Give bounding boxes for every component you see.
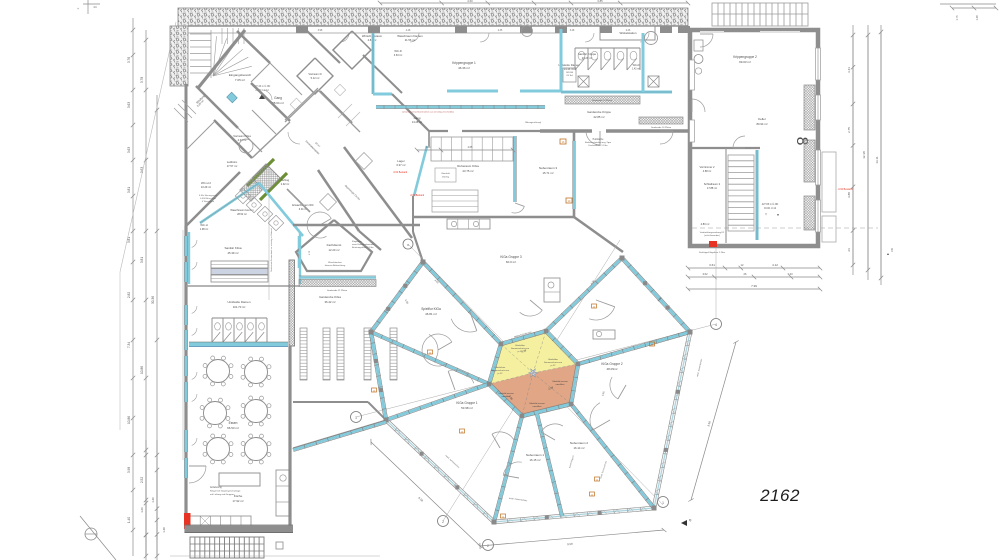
svg-text:9.59: 9.59 xyxy=(567,542,573,546)
svg-text:24: 24 xyxy=(847,248,851,252)
svg-text:Glasfeld aussen: Glasfeld aussen xyxy=(498,393,514,395)
svg-text:WC-H 2: WC-H 2 xyxy=(201,181,211,185)
svg-text:-0.62 Bestand: -0.62 Bestand xyxy=(393,171,408,174)
svg-text:3.48: 3.48 xyxy=(570,30,575,32)
svg-text:Sanitär KiGa: Sanitär KiGa xyxy=(224,246,241,250)
svg-text:Glasfeld aussen: Glasfeld aussen xyxy=(552,381,568,383)
svg-text:10.29 m²: 10.29 m² xyxy=(201,185,211,189)
svg-text:19.46 m²: 19.46 m² xyxy=(564,67,574,71)
svg-text:3.81: 3.81 xyxy=(140,257,144,263)
svg-text:60.0 m²: 60.0 m² xyxy=(506,260,516,264)
svg-text:12.20 m²: 12.20 m² xyxy=(328,248,339,252)
svg-text:101.70 m²: 101.70 m² xyxy=(233,305,246,309)
svg-text:3.78: 3.78 xyxy=(140,77,144,83)
svg-text:Flügeltüre: Flügeltüre xyxy=(352,240,363,243)
svg-text:Garderobe 21 Plätze: Garderobe 21 Plätze xyxy=(327,289,348,292)
svg-text:2.82: 2.82 xyxy=(127,292,131,298)
svg-text:WC-D: WC-D xyxy=(394,49,401,53)
svg-text:3.85: 3.85 xyxy=(597,0,603,3)
svg-text:Sonnenschutz neu: Sonnenschutz neu xyxy=(491,369,510,372)
svg-text:Schlafraum 2: Schlafraum 2 xyxy=(704,182,721,186)
svg-text:Sichtschutz Fensterbank ca. ei: Sichtschutz Fensterbank ca. einseitig m.… xyxy=(270,228,273,272)
svg-text:-0.62 Bestand: -0.62 Bestand xyxy=(838,188,854,191)
svg-text:1: 1 xyxy=(662,501,664,505)
svg-text:45.39 m²: 45.39 m² xyxy=(227,251,238,255)
svg-text:4.48: 4.48 xyxy=(406,30,411,32)
svg-text:auf Lüftung und Gruppen: auf Lüftung und Gruppen xyxy=(210,493,235,496)
svg-text:vorhandene Dachkonstruktion au: vorhandene Dachkonstruktion aus einseiti… xyxy=(402,111,455,114)
svg-text:Krippengruppe 2: Krippengruppe 2 xyxy=(733,55,757,59)
svg-text:30.36: 30.36 xyxy=(151,296,155,304)
svg-text:2: 2 xyxy=(487,544,489,548)
svg-text:Garderobe Krippe: Garderobe Krippe xyxy=(587,110,611,114)
svg-text:1.60: 1.60 xyxy=(140,507,144,513)
svg-text:Klingel mit Gegensprechanlage: Klingel mit Gegensprechanlage xyxy=(210,490,241,493)
svg-text:3.98: 3.98 xyxy=(127,467,131,473)
svg-text:emailliert: emailliert xyxy=(533,405,542,408)
svg-text:160 Kg: 160 Kg xyxy=(442,177,450,179)
svg-text:53.98 m²: 53.98 m² xyxy=(461,406,473,410)
svg-text:Garderobe 14 Plätze: Garderobe 14 Plätze xyxy=(592,99,613,102)
svg-text:16.15 m²: 16.15 m² xyxy=(529,458,540,462)
svg-text:Waschraum Damen: Waschraum Damen xyxy=(397,34,423,38)
svg-text:Brüstungshöhe 1.13m: Brüstungshöhe 1.13m xyxy=(352,246,374,249)
svg-text:1: 1 xyxy=(355,416,357,420)
svg-text:66.53 m²: 66.53 m² xyxy=(227,426,239,430)
svg-text:Sonnenschutz neu: Sonnenschutz neu xyxy=(544,361,563,364)
svg-text:2.35: 2.35 xyxy=(498,30,503,32)
svg-text:Küche: Küche xyxy=(234,494,243,498)
svg-text:2162: 2162 xyxy=(759,486,800,505)
svg-text:Fachdienst: Fachdienst xyxy=(327,243,342,247)
svg-text:13.11: 13.11 xyxy=(875,156,879,164)
svg-text:Gang: Gang xyxy=(274,96,282,100)
svg-text:3.81: 3.81 xyxy=(127,187,131,193)
svg-text:48.09m²: 48.09m² xyxy=(606,367,617,371)
svg-text:Anlieferung: Anlieferung xyxy=(210,486,222,489)
svg-text:Einbauschränke insg. 2qm: Einbauschränke insg. 2qm xyxy=(585,141,611,144)
svg-text:3.61: 3.61 xyxy=(709,263,715,267)
svg-text:Vorraum D: Vorraum D xyxy=(308,72,321,76)
svg-text:2: 2 xyxy=(442,520,444,524)
svg-text:4: 4 xyxy=(715,323,717,327)
svg-text:Keller: Keller xyxy=(758,117,766,121)
svg-text:Ruheraum KiGa: Ruheraum KiGa xyxy=(457,164,479,168)
svg-text:Drehkipp-Flügeltüre 1.20m: Drehkipp-Flügeltüre 1.20m xyxy=(699,251,725,254)
svg-text:Krippengruppe 1: Krippengruppe 1 xyxy=(452,61,476,65)
svg-text:Nebenraum 3: Nebenraum 3 xyxy=(539,166,558,170)
svg-text:emailliert: emailliert xyxy=(556,383,565,386)
svg-text:Deckenhöhe 1.13m: Deckenhöhe 1.13m xyxy=(589,145,608,147)
svg-text:23.75 m²: 23.75 m² xyxy=(462,169,473,173)
svg-text:10.86: 10.86 xyxy=(140,366,144,374)
svg-text:Glasfeld aussen: Glasfeld aussen xyxy=(529,403,545,405)
svg-text:46.81 m²: 46.81 m² xyxy=(425,312,437,316)
svg-text:10.86: 10.86 xyxy=(127,416,131,424)
svg-text:36.42 m²: 36.42 m² xyxy=(324,300,335,304)
svg-text:KiGa Gruppe 2: KiGa Gruppe 2 xyxy=(601,362,622,366)
svg-text:22.85 m²: 22.85 m² xyxy=(593,115,604,119)
svg-text:4.12: 4.12 xyxy=(772,263,778,267)
svg-text:Waschraum Herren: Waschraum Herren xyxy=(230,208,254,212)
svg-text:±0.00 -0.12: ±0.00 -0.12 xyxy=(764,207,777,210)
svg-text:7.34: 7.34 xyxy=(127,342,131,348)
svg-text:1.40: 1.40 xyxy=(151,497,155,503)
svg-text:Eingangsbereich: Eingangsbereich xyxy=(229,73,252,77)
svg-text:Umkleide Damen: Umkleide Damen xyxy=(227,300,250,304)
svg-text:13.28 m²: 13.28 m² xyxy=(412,120,422,124)
svg-text:3.63: 3.63 xyxy=(127,102,131,108)
svg-text:ja 12: ja 12 xyxy=(550,365,557,367)
svg-text:4.058 Büro aktiv: 4.058 Büro aktiv xyxy=(200,197,217,200)
svg-text:Vorzimmer 2: Vorzimmer 2 xyxy=(699,165,715,169)
svg-text:1.48: 1.48 xyxy=(162,527,166,533)
svg-text:12.38: 12.38 xyxy=(862,151,866,159)
svg-text:69.03 m²: 69.03 m² xyxy=(739,60,751,64)
svg-text:OU Saf: OU Saf xyxy=(566,75,573,77)
svg-text:6.37 m²: 6.37 m² xyxy=(396,163,405,167)
svg-text:Gang: Gang xyxy=(414,116,421,120)
svg-text:Garderobe 16 Plätze: Garderobe 16 Plätze xyxy=(651,126,672,129)
svg-text:1.48: 1.48 xyxy=(975,15,979,21)
svg-text:2.52: 2.52 xyxy=(140,477,144,483)
svg-text:Intensiv-Beleuchtung: Intensiv-Beleuchtung xyxy=(325,264,346,267)
svg-text:7.99: 7.99 xyxy=(751,284,757,288)
svg-text:17.57 m²: 17.57 m² xyxy=(227,164,238,168)
svg-text:4.88 m²: 4.88 m² xyxy=(703,170,712,173)
svg-text:neue Fensterelemente: neue Fensterelemente xyxy=(352,243,375,246)
svg-text:Öffnungsrichtung!: Öffnungsrichtung! xyxy=(525,121,542,124)
svg-text:17.88 m²: 17.88 m² xyxy=(707,186,717,190)
svg-text:Nebenraum 1: Nebenraum 1 xyxy=(526,453,545,457)
svg-text:15.71 m²: 15.71 m² xyxy=(542,171,553,175)
svg-text:16.14 m²: 16.14 m² xyxy=(573,446,584,450)
svg-text:KiGa Gruppe 1: KiGa Gruppe 1 xyxy=(456,401,477,405)
svg-text:CD: CD xyxy=(890,248,894,252)
svg-text:24: 24 xyxy=(93,5,97,9)
svg-text:-0.62 Bestand: -0.62 Bestand xyxy=(410,194,425,197)
svg-text:1.75: 1.75 xyxy=(955,15,959,21)
svg-text:Essen: Essen xyxy=(229,421,238,425)
svg-text:4.65: 4.65 xyxy=(468,146,473,149)
svg-text:3.98: 3.98 xyxy=(318,30,323,32)
svg-text:4.60: 4.60 xyxy=(467,0,473,3)
svg-text:7.05 m²: 7.05 m² xyxy=(235,78,245,82)
svg-text:KiGa Gruppe 3: KiGa Gruppe 3 xyxy=(500,255,521,259)
svg-text:Garderobe KiGa: Garderobe KiGa xyxy=(319,295,341,299)
svg-text:(nicht brennbar): (nicht brennbar) xyxy=(704,234,720,237)
svg-text:Verdunklungsvorhang K2: Verdunklungsvorhang K2 xyxy=(700,231,725,234)
svg-text:427.65 m Ü.NN: 427.65 m Ü.NN xyxy=(762,203,779,206)
svg-text:3.88: 3.88 xyxy=(847,192,851,198)
svg-text:46.36 m²: 46.36 m² xyxy=(458,66,470,70)
svg-text:4.80 m²: 4.80 m² xyxy=(701,222,710,226)
svg-text:1.40: 1.40 xyxy=(127,517,131,523)
svg-text:3.63 m²: 3.63 m² xyxy=(394,54,403,57)
svg-text:Glasfelder: Glasfelder xyxy=(548,358,558,361)
svg-text:6.Klo Sitzungssaal: 6.Klo Sitzungssaal xyxy=(199,194,218,197)
svg-text:3.62: 3.62 xyxy=(702,272,708,276)
svg-text:3.76: 3.76 xyxy=(127,57,131,63)
svg-text:ja 12: ja 12 xyxy=(497,373,504,375)
svg-text:▲: ▲ xyxy=(886,252,889,256)
svg-text:5.12 m²: 5.12 m² xyxy=(311,76,320,80)
svg-text:Waschbecken: Waschbecken xyxy=(328,262,342,264)
svg-text:Oberlicht: Oberlicht xyxy=(441,172,450,175)
svg-text:Spielflur KiGa: Spielflur KiGa xyxy=(421,307,441,311)
svg-text:Sanitär Krippe: Sanitär Krippe xyxy=(578,52,597,56)
svg-text:Sonnenschutz neu: Sonnenschutz neu xyxy=(511,347,530,350)
svg-text:Putzküche: Putzküche xyxy=(593,138,604,141)
svg-text:Nebenraum 2: Nebenraum 2 xyxy=(570,441,589,445)
svg-text:2.92 m²: 2.92 m² xyxy=(281,183,290,186)
svg-text:3.41: 3.41 xyxy=(847,67,851,73)
svg-text:1.98 m²: 1.98 m² xyxy=(200,228,209,231)
svg-text:WC-H: WC-H xyxy=(200,223,207,227)
svg-text:ja 12: ja 12 xyxy=(517,351,524,353)
svg-text:Lager: Lager xyxy=(397,159,404,163)
svg-text:Aufzug: Aufzug xyxy=(281,178,290,182)
svg-text:1.42 m²: 1.42 m² xyxy=(632,68,640,71)
svg-text:3.63: 3.63 xyxy=(127,147,131,153)
svg-text:4 Wasungen: 4 Wasungen xyxy=(202,201,215,203)
svg-text:109/106: 109/106 xyxy=(566,72,574,74)
svg-text:Oberlichter: Oberlichter xyxy=(495,366,506,369)
svg-text:2.75: 2.75 xyxy=(847,127,851,133)
svg-text:80.94 m²: 80.94 m² xyxy=(756,122,767,126)
svg-text:▼: ▼ xyxy=(777,213,780,217)
svg-text:Leitbüro: Leitbüro xyxy=(227,160,238,164)
svg-text:21.56 m²: 21.56 m² xyxy=(405,38,416,42)
svg-text:28.52 m²: 28.52 m² xyxy=(237,213,247,216)
svg-text:3.43: 3.43 xyxy=(787,272,793,276)
svg-text:Glasfelder: Glasfelder xyxy=(515,344,525,347)
svg-text:emailliert: emailliert xyxy=(502,395,511,398)
svg-text:Vorraum KiGa: Vorraum KiGa xyxy=(233,134,251,138)
svg-text:Wickelstation: Wickelstation xyxy=(619,31,636,35)
svg-text:17.92 m²: 17.92 m² xyxy=(232,499,243,503)
svg-text:1.88: 1.88 xyxy=(426,146,431,149)
